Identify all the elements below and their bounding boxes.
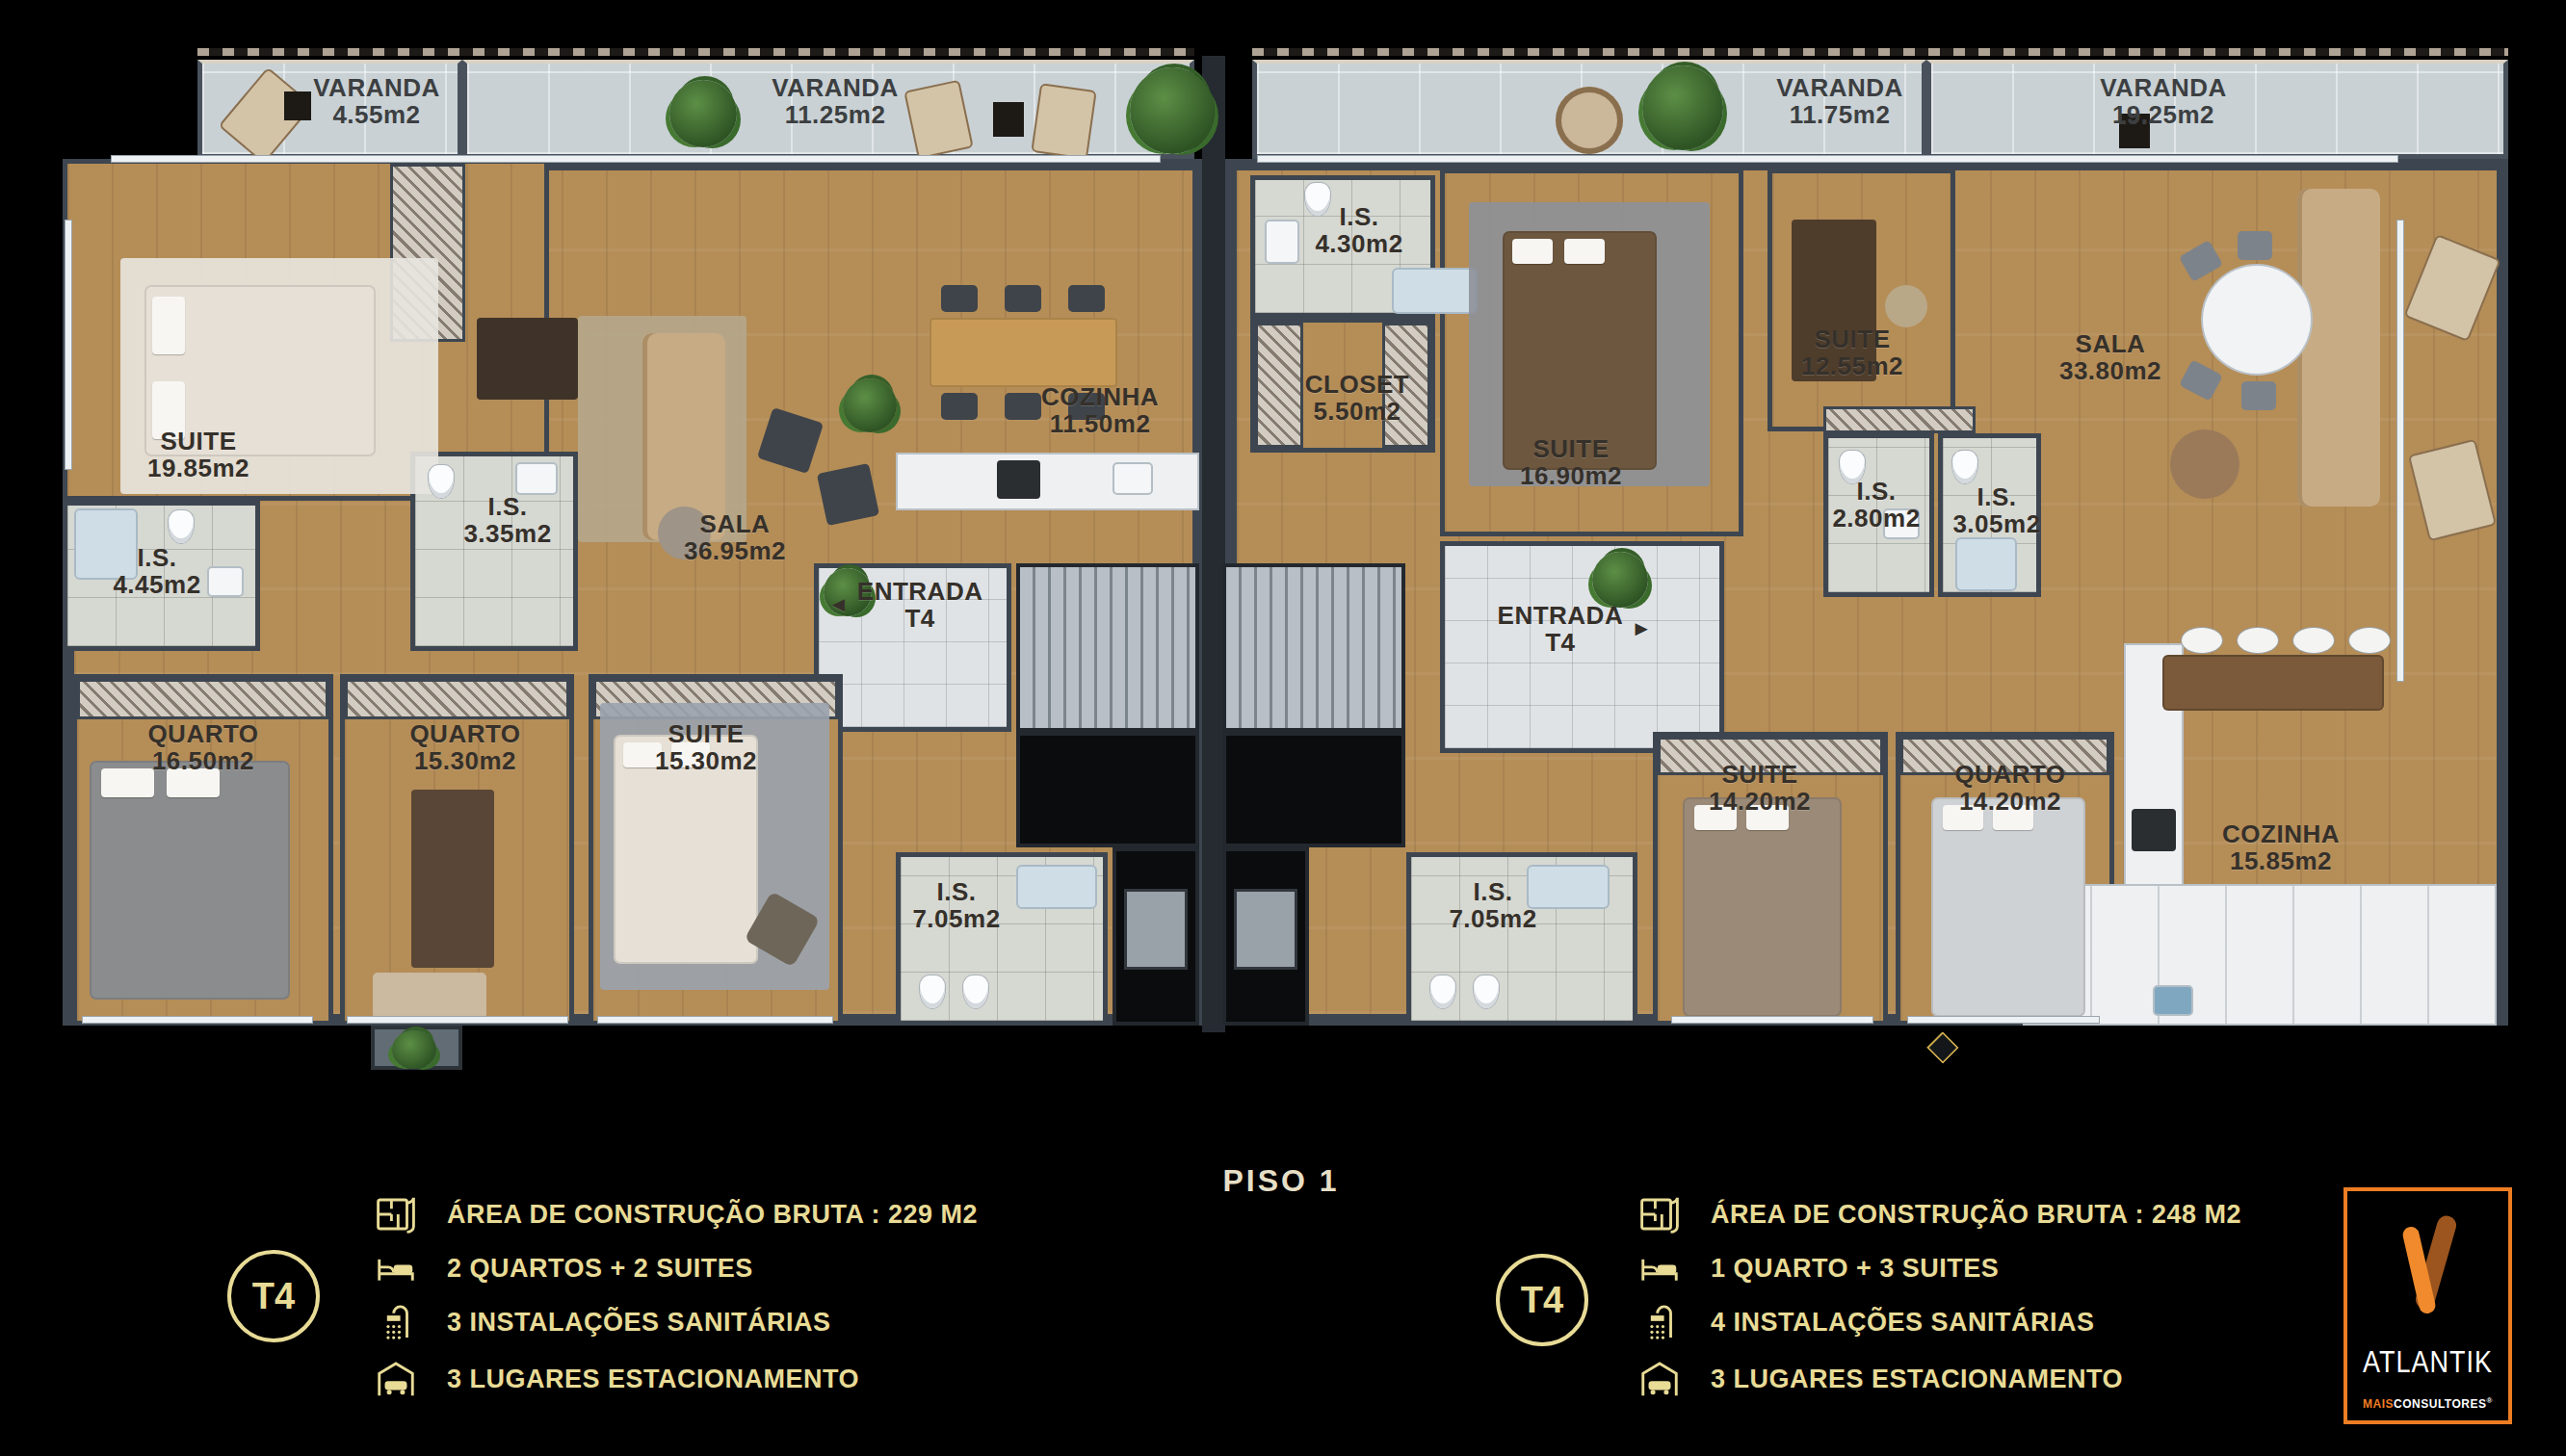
t4-badge-left: T4 [227,1250,320,1342]
window-strip [1907,1016,2100,1024]
hanging-chair [1556,87,1623,154]
room-label: SUITE14.20m2 [1709,761,1811,815]
window-strip [82,1016,313,1024]
roof-edge [1252,48,2508,56]
plant [1592,552,1648,608]
elevator-car-right [1234,889,1297,970]
room-label: SUITE19.85m2 [147,428,249,481]
garage-icon [374,1357,418,1401]
shower [1955,537,2017,591]
kitchen-sink [1113,462,1153,495]
plant [669,80,737,147]
cooktop [2132,809,2176,851]
floorplan-canvas: VARANDA4.55m2 VARANDA11.25m2 VARANDA11.7… [0,0,2566,1456]
balcony-label: VARANDA19.25m2 [2100,74,2227,128]
room-label: I.S.4.30m2 [1315,203,1402,257]
bed [90,761,290,1000]
kitchen-counter-left [896,453,1199,510]
kitchen-island [2162,655,2384,711]
legend-row: 3 INSTALAÇÕES SANITÁRIAS [374,1299,831,1345]
room-label: I.S.4.45m2 [113,544,200,598]
dining-chair [2241,381,2276,410]
arrow-left-icon: ◄ [828,593,850,616]
plant [843,378,897,432]
dining-chair [941,393,978,420]
desk [411,790,494,968]
wardrobe [1823,406,1976,433]
room-label: SUITE16.90m2 [1520,435,1622,489]
arrow-right-icon: ► [1631,617,1652,640]
legend-row: 3 LUGARES ESTACIONAMENTO [1637,1356,2123,1402]
room-label: COZINHA11.50m2 [1041,383,1159,437]
room-label: CLOSET5.50m2 [1305,371,1409,425]
shower-icon [1637,1300,1682,1344]
desk-chair [1885,285,1927,327]
balcony-label: VARANDA11.75m2 [1776,74,1903,128]
bathtub [1392,268,1478,314]
room-label: I.S.2.80m2 [1832,478,1920,532]
cooktop [997,460,1040,499]
atlantik-a-icon [2382,1212,2474,1318]
dining-chair [941,285,978,312]
wardrobe [77,679,328,719]
sink [515,462,558,495]
bench [373,973,486,1019]
room-label: QUARTO15.30m2 [409,720,520,774]
stair-shaft-right [1222,732,1405,847]
balcony-label: VARANDA4.55m2 [313,74,440,128]
window-strip [65,220,72,470]
stool [2182,628,2222,653]
building-plan: VARANDA4.55m2 VARANDA11.25m2 VARANDA11.7… [53,27,2509,1050]
roof-edge [197,48,1194,56]
floorplan-icon [1637,1192,1682,1236]
dining-chair [1005,285,1041,312]
legend-row: 1 QUARTO + 3 SUITES [1637,1245,1999,1291]
garage-icon [1637,1357,1682,1401]
stair-shaft-left [1016,732,1199,847]
entrance-label-right: ENTRADAT4 ► [1498,602,1653,656]
window-strip [347,1016,568,1024]
stool [2238,628,2278,653]
balcony-label: VARANDA11.25m2 [772,74,899,128]
room-label: SALA33.80m2 [2059,330,2161,384]
side-table [284,91,311,120]
bed-icon [1637,1246,1682,1290]
window-strip [597,1016,833,1024]
room-label: SUITE12.55m2 [1801,325,1903,379]
legend-row: 4 INSTALAÇÕES SANITÁRIAS [1637,1299,2095,1345]
room-label: COZINHA15.85m2 [2222,820,2340,874]
sink [1265,220,1299,264]
bed-icon [374,1246,418,1290]
bed [1931,797,2085,1017]
legend-row: 2 QUARTOS + 2 SUITES [374,1245,753,1291]
window-strip [1257,155,2398,163]
dining-chair [1005,393,1041,420]
legend-row: ÁREA DE CONSTRUÇÃO BRUTA : 248 M2 [1637,1191,2241,1237]
legend-row: 3 LUGARES ESTACIONAMENTO [374,1356,859,1402]
floor-title: PISO 1 [1204,1163,1358,1199]
bed [1683,797,1842,1017]
room-label: I.S.7.05m2 [1449,878,1536,932]
window-strip [2396,220,2404,682]
room-label: I.S.3.35m2 [463,493,551,547]
dining-chair [1068,285,1105,312]
stool [2293,628,2334,653]
window-strip [111,155,1161,163]
kitchen-sink [2153,985,2193,1016]
side-table [993,102,1024,137]
sofa [2297,189,2380,507]
atlantik-logo: ATLANTIK MAISCONSULTORES® [2343,1187,2512,1424]
plant [1642,65,1723,150]
brand-wordmark: ATLANTIK [2347,1346,2508,1381]
elevator-car-left [1124,889,1188,970]
plant [392,1030,436,1069]
tv-unit [477,318,578,400]
plant [1130,67,1215,154]
brand-tagline: MAISCONSULTORES® [2347,1396,2508,1411]
entrance-label-left: ◄ ENTRADAT4 [828,578,983,632]
bathtub [1527,865,1610,909]
deck-chair [1031,83,1096,160]
legend-row: ÁREA DE CONSTRUÇÃO BRUTA : 229 M2 [374,1191,978,1237]
coffee-table [2170,429,2239,499]
room-label: I.S.3.05m2 [1952,483,2040,537]
wardrobe [1255,323,1303,448]
window-strip [1671,1016,1873,1024]
stairs-left [1016,563,1199,732]
cube-marker [1926,1031,1959,1064]
kitchen-cabinets [2023,884,2497,1026]
room-label: QUARTO16.50m2 [147,720,258,774]
shower-icon [374,1300,418,1344]
floorplan-icon [374,1192,418,1236]
stool [2349,628,2390,653]
dining-table [930,318,1117,387]
round-dining-table [2203,266,2311,374]
room-label: SUITE15.30m2 [655,720,757,774]
armchair [817,463,879,526]
dining-chair [2238,231,2272,260]
room-label: I.S.7.05m2 [912,878,1000,932]
room-label: QUARTO14.20m2 [1954,761,2065,815]
sink [207,566,244,597]
room-label: SALA36.95m2 [684,510,786,564]
bathtub [1016,865,1097,909]
wardrobe [345,679,569,719]
t4-badge-right: T4 [1496,1254,1588,1346]
stairs-right [1222,563,1405,732]
